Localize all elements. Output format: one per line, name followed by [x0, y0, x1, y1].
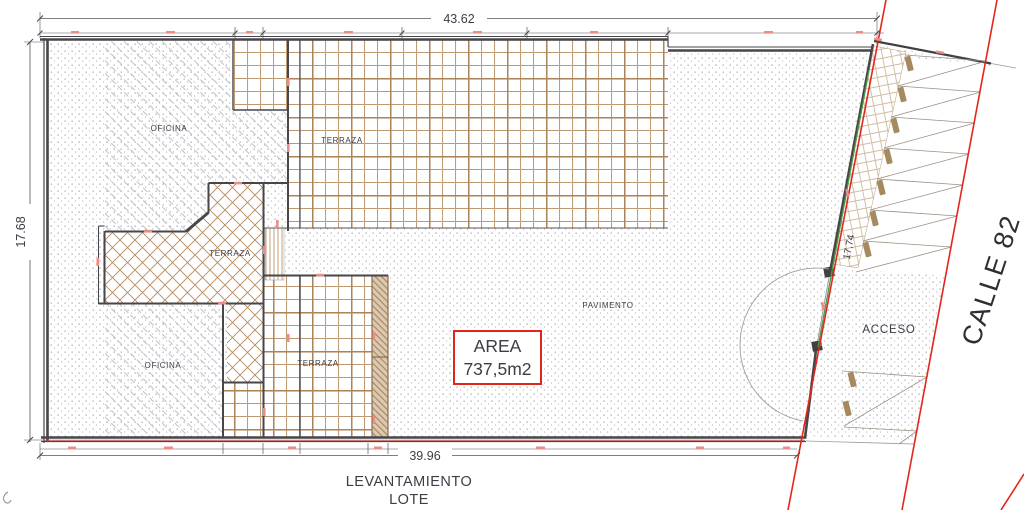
dimension-left: 17.68 [14, 216, 28, 247]
area-box-value: 737,5m2 [463, 359, 531, 379]
dimension-bottom: 39.96 [409, 449, 440, 463]
caption-line2: LOTE [389, 492, 429, 508]
caption-line1: LEVANTAMIENTO [346, 474, 473, 490]
floor-plan-drawing: 43.62 17.68 39.96 17,74 OFICINA TERRAZA … [0, 0, 1024, 510]
ramp-strip-hatch [372, 275, 388, 438]
label-acceso: ACCESO [862, 324, 915, 336]
area-box: AREA 737,5m2 [454, 331, 541, 384]
area-box-title: AREA [474, 336, 522, 356]
terraza-top-grid [233, 40, 668, 228]
oficina-bottom-hatch [105, 304, 223, 437]
label-terraza-bottom: TERRAZA [297, 359, 339, 368]
dimension-top: 43.62 [443, 12, 474, 26]
label-oficina-bottom: OFICINA [145, 361, 182, 370]
label-oficina-top: OFICINA [151, 124, 188, 133]
label-terraza-top: TERRAZA [321, 136, 363, 145]
label-terraza-middle: TERRAZA [209, 249, 251, 258]
stair-detail-vlines [265, 228, 284, 280]
label-pavimento: PAVIMENTO [582, 301, 633, 310]
